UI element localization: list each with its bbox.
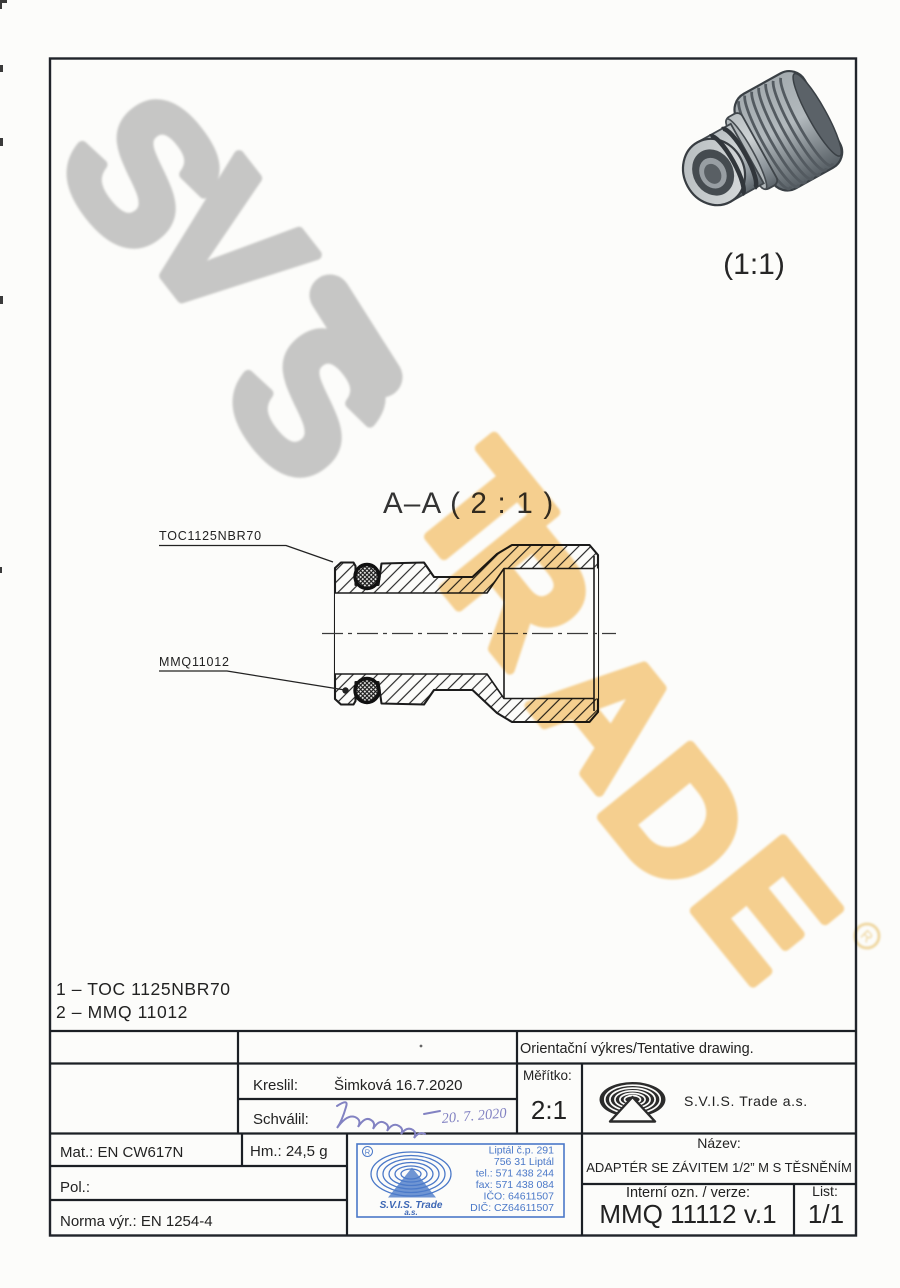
svg-text:1/1: 1/1 xyxy=(808,1199,844,1229)
svg-text:Hm.: 24,5 g: Hm.: 24,5 g xyxy=(250,1143,328,1160)
svg-text:Liptál č.p. 291: Liptál č.p. 291 xyxy=(489,1145,555,1157)
svg-text:a.s.: a.s. xyxy=(404,1208,417,1217)
svg-text:756 31 Liptál: 756 31 Liptál xyxy=(494,1156,554,1168)
svg-text:DIČ: CZ64611507: DIČ: CZ64611507 xyxy=(470,1201,554,1214)
svg-text:List:: List: xyxy=(812,1183,838,1199)
svg-text:(1:1): (1:1) xyxy=(723,248,785,281)
svg-text:Kreslil:: Kreslil: xyxy=(253,1077,298,1094)
svg-text:R: R xyxy=(365,1148,371,1157)
svg-text:Schválil:: Schválil: xyxy=(253,1111,309,1128)
svg-text:S.V.I.S. Trade a.s.: S.V.I.S. Trade a.s. xyxy=(684,1093,808,1109)
svg-text:tel.: 571 438 244: tel.: 571 438 244 xyxy=(476,1168,554,1180)
svg-text:Měřítko:: Měřítko: xyxy=(523,1068,572,1083)
svg-text:2:1: 2:1 xyxy=(531,1095,567,1125)
svg-text:Orientační výkres/Tentative dr: Orientační výkres/Tentative drawing. xyxy=(520,1041,754,1057)
svg-text:IČO: 64611507: IČO: 64611507 xyxy=(484,1190,555,1203)
svg-text:ADAPTÉR SE ZÁVITEM 1/2” M S TĚ: ADAPTÉR SE ZÁVITEM 1/2” M S TĚSNĚNÍM xyxy=(586,1160,852,1175)
svg-text:TOC1125NBR70: TOC1125NBR70 xyxy=(159,529,262,543)
svg-text:Norma výr.: EN 1254-4: Norma výr.: EN 1254-4 xyxy=(60,1213,213,1230)
svg-text:2 – MMQ 11012: 2 – MMQ 11012 xyxy=(56,1002,188,1022)
svg-text:Pol.:: Pol.: xyxy=(60,1179,90,1196)
svg-text:Mat.: EN CW617N: Mat.: EN CW617N xyxy=(60,1144,183,1161)
svg-text:Šimková 16.7.2020: Šimková 16.7.2020 xyxy=(334,1077,462,1094)
svg-text:fax: 571 438 084: fax: 571 438 084 xyxy=(476,1179,554,1191)
svg-text:MMQ 11112 v.1: MMQ 11112 v.1 xyxy=(599,1199,776,1229)
svg-text:Název:: Název: xyxy=(697,1135,741,1151)
svg-text:MMQ11012: MMQ11012 xyxy=(159,655,230,669)
svg-text:1 – TOC 1125NBR70: 1 – TOC 1125NBR70 xyxy=(56,979,231,999)
